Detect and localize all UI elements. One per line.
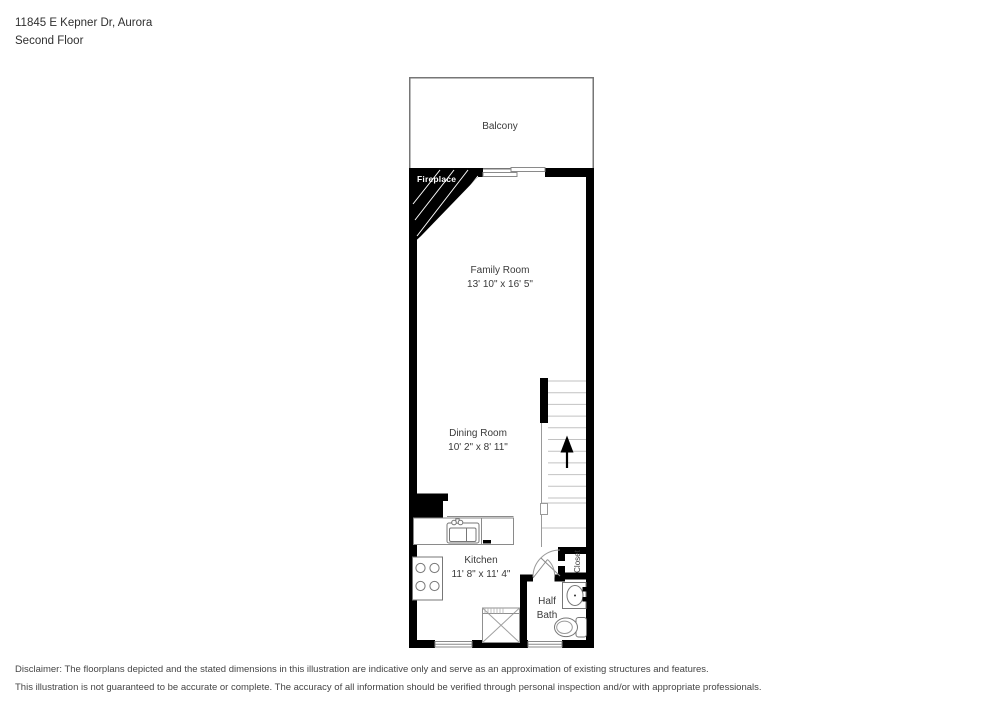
kitchen-black-unit [413, 501, 443, 518]
family-room-label: Family Room 13' 10" x 16' 5" [400, 264, 600, 292]
address-line: 11845 E Kepner Dr, Aurora [15, 14, 152, 32]
kitchen-wall-stub [409, 494, 448, 502]
window-bath [528, 642, 562, 648]
header: 11845 E Kepner Dr, Aurora Second Floor [15, 14, 152, 50]
floor-line: Second Floor [15, 32, 152, 50]
dining-room-label: Dining Room 10' 2" x 8' 11" [378, 427, 578, 455]
island-unit [483, 608, 520, 643]
family-room-dims: 13' 10" x 16' 5" [400, 278, 600, 292]
kitchen-label: Kitchen 11' 8" x 11' 4" [381, 554, 581, 582]
disclaimer: Disclaimer: The floorplans depicted and … [15, 661, 762, 697]
disclaimer-line-2: This illustration is not guaranteed to b… [15, 679, 762, 697]
half-bath-line2: Bath [517, 609, 577, 623]
dining-room-dims: 10' 2" x 8' 11" [378, 441, 578, 455]
stair-wall [540, 378, 548, 423]
dining-room-name: Dining Room [378, 427, 578, 441]
bottom-wall-left [409, 640, 435, 648]
half-bath-label: Half Bath [517, 595, 577, 623]
kitchen-dims: 11' 8" x 11' 4" [381, 568, 581, 582]
floorplan-page: 11845 E Kepner Dr, Aurora Second Floor [0, 0, 1000, 707]
window-kitchen [435, 642, 472, 648]
family-room-name: Family Room [400, 264, 600, 278]
fireplace-label: Fireplace [417, 174, 456, 184]
bottom-wall-right [562, 640, 594, 648]
right-wall [586, 168, 594, 648]
closet-label-text: Closet [573, 550, 582, 573]
stairs [540, 378, 586, 547]
disclaimer-line-1: Disclaimer: The floorplans depicted and … [15, 661, 762, 679]
kitchen-name: Kitchen [381, 554, 581, 568]
closet-label: Closet [562, 548, 592, 575]
balcony-label: Balcony [400, 120, 600, 134]
half-bath-line1: Half [517, 595, 577, 609]
